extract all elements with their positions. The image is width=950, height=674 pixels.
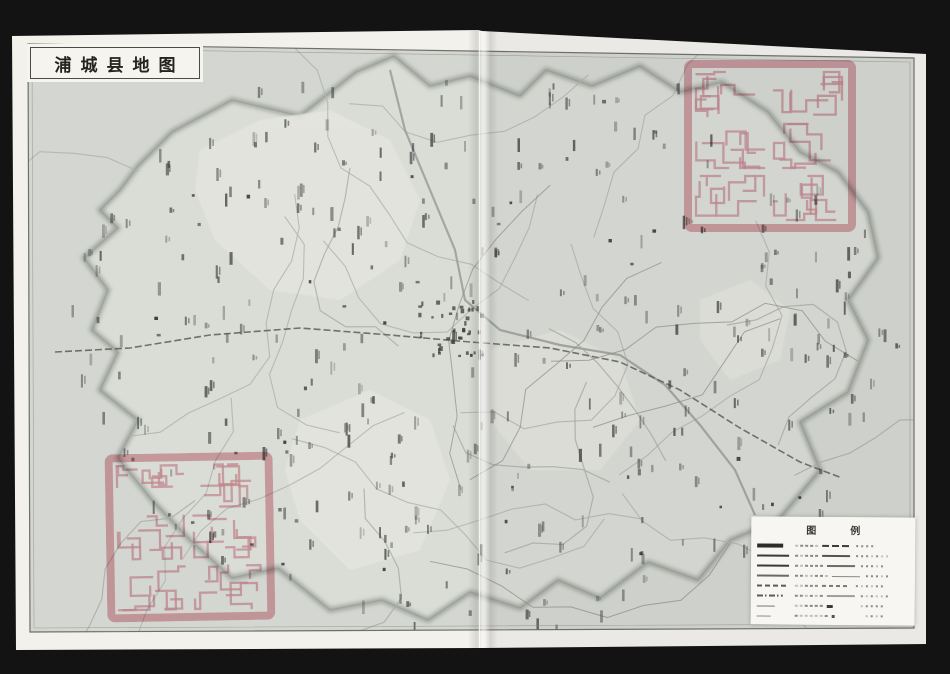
path-line-icon [831,575,859,576]
legend-mid-sample [826,595,856,597]
legend-left-sample [757,564,791,567]
illegible-legend-text [865,615,883,618]
illegible-legend-text [861,565,884,568]
illegible-legend-text [795,584,818,587]
thin-solid-line-icon [757,575,789,577]
legend-mid-sample [831,575,861,576]
legend-left-sample [757,615,791,616]
legend-left-sample [757,543,791,547]
collection-seal-top-right [684,60,856,236]
thick-solid-line-icon [757,564,789,567]
river-line-icon [826,595,854,597]
illegible-legend-text [795,604,823,607]
legend-mid-sample [822,555,852,557]
center-fold-line [479,30,480,650]
map-title: 浦城县地图 [46,51,185,76]
dot-dash-line-icon [757,595,783,596]
town-bold-label-icon [757,543,783,547]
illegible-legend-text [856,545,874,548]
illegible-legend-text [795,574,828,577]
short-thin-line-icon [757,605,775,606]
point-symbol-icon [826,604,832,607]
legend-left-sample [757,554,791,557]
highway-line-icon [822,555,850,557]
map-title-cartouche: 浦城县地图 [30,47,200,79]
collection-seal-bottom-left [105,452,276,627]
book-pages: 浦城县地图 图 例 [0,0,950,674]
boundary-line-icon [821,585,849,586]
dashed-line-icon [757,585,789,587]
thick-solid-line-icon [757,554,789,557]
illegible-legend-text [795,614,828,617]
illegible-legend-text [860,595,888,598]
legend-mid-sample [831,614,861,617]
legend-mid-sample [827,565,857,567]
illegible-legend-text [865,575,888,578]
railway-triple-dash-icon [822,545,850,548]
legend-left-sample [757,605,791,606]
legend-title: 图 例 [757,521,909,537]
illegible-legend-text [855,585,883,588]
road-line-icon [827,565,855,567]
legend-panel: 图 例 [751,516,916,625]
illegible-legend-text [860,605,883,608]
illegible-legend-text [795,544,818,547]
legend-mid-sample [826,604,856,607]
fine-line-icon [757,615,771,616]
legend-title-char-2: 例 [850,522,860,537]
legend-title-char-1: 图 [806,522,816,537]
illegible-legend-text [795,554,818,557]
legend-left-sample [757,575,791,577]
illegible-legend-text [795,564,823,567]
photographed-atlas-spread: 浦城县地图 图 例 [0,0,950,674]
legend-left-sample [757,585,791,587]
legend-mid-sample [822,545,852,548]
illegible-legend-text [795,594,823,597]
legend-mid-sample [821,585,851,586]
illegible-legend-text [856,555,889,558]
legend-left-sample [757,595,791,597]
dot-symbol-icon [831,614,834,617]
legend-row-8 [757,610,909,621]
legend-rows [757,540,910,621]
